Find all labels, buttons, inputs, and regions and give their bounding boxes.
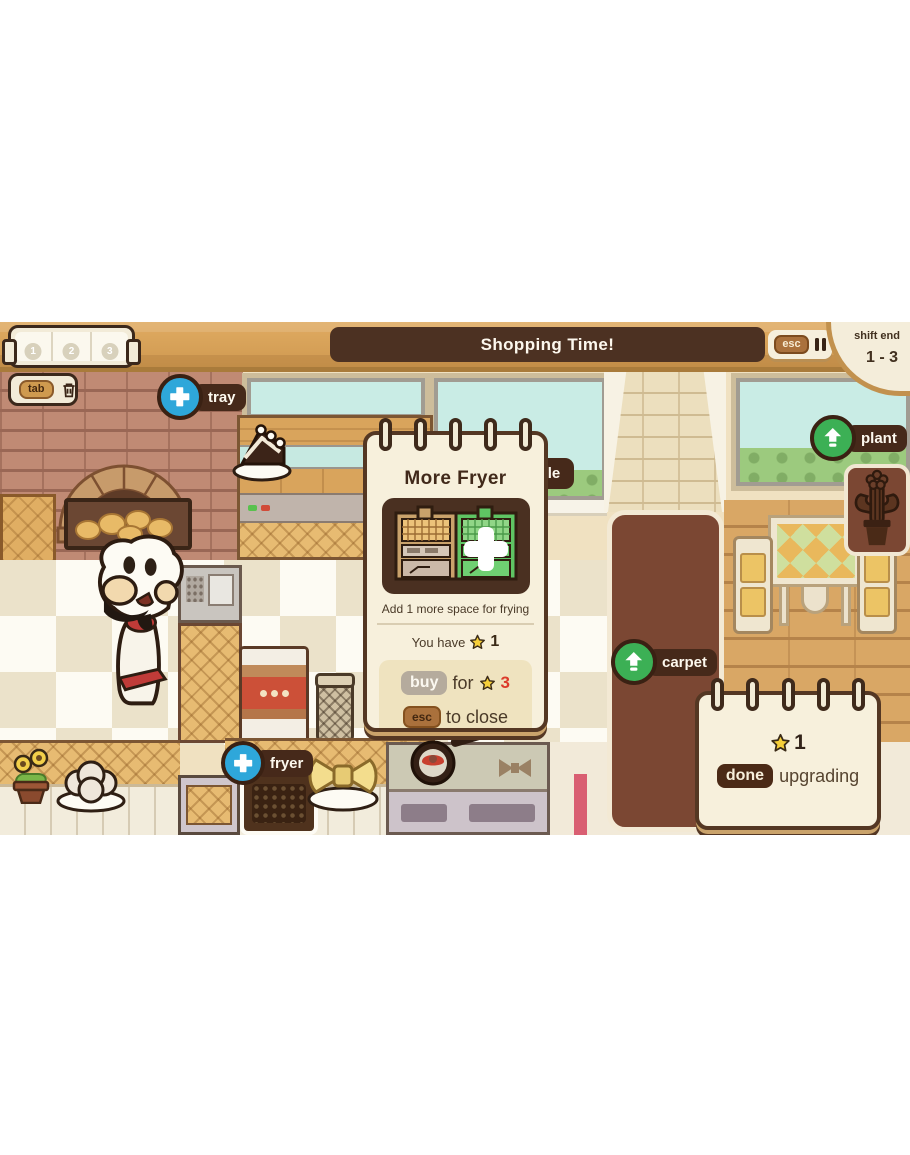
upgrade-note: 1 done upgrading xyxy=(695,678,881,830)
screenshot-page: Shopping Time! esc shift end 1 - 3 1 2 3… xyxy=(0,0,910,1155)
spiral-ring xyxy=(414,418,427,451)
note-paper: 1 done upgrading xyxy=(695,691,881,830)
tab-trash-panel: tab xyxy=(8,373,78,406)
to-close-label: to close xyxy=(446,707,508,728)
popup-image-panel xyxy=(382,498,530,594)
popup-action-box: buy for 3 esc to close xyxy=(379,660,532,732)
spiral-ring xyxy=(379,418,392,451)
fryer-basket xyxy=(186,785,232,825)
tray-slots-panel[interactable]: 1 2 3 xyxy=(8,325,135,368)
tray-slot-2[interactable]: 2 xyxy=(51,332,89,361)
coffee-button xyxy=(271,690,278,697)
upgrade-carpet-button[interactable] xyxy=(611,639,657,685)
cactus-illustration xyxy=(850,469,904,551)
spiral-ring xyxy=(746,678,759,711)
chef-character xyxy=(80,532,198,717)
buns-plate xyxy=(54,750,128,814)
fryer-interior xyxy=(252,784,306,823)
coffee-button xyxy=(260,690,267,697)
fryer-upgrade-illustration xyxy=(390,505,522,587)
owned-star-count: 1 xyxy=(490,633,499,651)
esc-button[interactable]: esc xyxy=(774,335,808,354)
shop-tag-plant[interactable]: plant xyxy=(810,415,907,461)
buy-button[interactable]: buy xyxy=(401,671,447,695)
cost-star-count: 3 xyxy=(501,673,510,693)
chair-cushion xyxy=(864,587,890,617)
red-indicator-light xyxy=(261,505,270,511)
coffee-top xyxy=(242,649,306,665)
up-arrow-icon xyxy=(622,650,646,674)
shift-range: 1 - 3 xyxy=(831,349,898,367)
you-have-row: You have 1 xyxy=(367,633,544,651)
note-done-row: done upgrading xyxy=(699,764,877,788)
tray-slot-3[interactable]: 3 xyxy=(90,332,128,361)
star-icon xyxy=(770,733,791,754)
note-star-count: 1 xyxy=(794,731,806,755)
plus-icon xyxy=(168,385,192,409)
spiral-ring xyxy=(519,418,532,451)
pause-button[interactable] xyxy=(815,338,826,351)
up-arrow-icon xyxy=(821,426,845,450)
done-button[interactable]: done xyxy=(717,764,773,788)
coffee-band-2 xyxy=(242,709,306,719)
note-spiral-rings xyxy=(711,678,865,711)
slot-number: 1 xyxy=(25,343,42,360)
table-leg xyxy=(841,584,851,626)
close-row: esc to close xyxy=(379,706,532,728)
chef-illustration xyxy=(80,532,198,717)
shop-tag-fryer[interactable]: fryer xyxy=(221,741,313,785)
pause-icon xyxy=(822,338,826,351)
cake-slice-plate xyxy=(230,416,294,482)
coffee-red-panel xyxy=(242,677,306,709)
chair-cushion xyxy=(740,587,766,617)
window-left xyxy=(247,378,425,418)
carpet-tag-label: carpet xyxy=(647,649,717,676)
slot-number: 3 xyxy=(101,343,118,360)
coffee-button xyxy=(282,690,289,697)
game-viewport: Shopping Time! esc shift end 1 - 3 1 2 3… xyxy=(0,322,910,835)
spiral-ring xyxy=(852,678,865,711)
shop-tag-tray[interactable]: tray xyxy=(157,374,246,420)
cactus-plant-card xyxy=(844,464,910,556)
chair-left xyxy=(733,536,773,634)
tab-key-button[interactable]: tab xyxy=(19,380,54,399)
tray-slot-1[interactable]: 1 xyxy=(15,332,51,361)
for-label: for xyxy=(452,673,473,694)
popup-esc-button[interactable]: esc xyxy=(403,706,441,728)
pink-wall-stripe xyxy=(574,774,587,835)
farfalle-glyph xyxy=(495,757,535,779)
spiral-ring xyxy=(817,678,830,711)
pause-icon xyxy=(815,338,819,351)
flower-pot-illustration xyxy=(8,744,54,804)
register-screen xyxy=(208,574,234,606)
add-tray-button[interactable] xyxy=(157,374,203,420)
star-icon xyxy=(469,634,486,651)
stove-vent xyxy=(401,804,447,822)
stove-vent xyxy=(469,804,535,822)
stove xyxy=(386,742,550,835)
stove-top xyxy=(389,745,547,792)
popup-spiral-rings xyxy=(379,418,532,451)
esc-pause-box: esc xyxy=(768,330,832,359)
farfalle-plate xyxy=(304,746,382,812)
doorway xyxy=(604,372,726,512)
chair-cushion xyxy=(740,553,766,583)
you-have-label: You have xyxy=(412,635,466,650)
shift-end-label: shift end xyxy=(831,330,900,342)
spiral-ring xyxy=(782,678,795,711)
table-leg xyxy=(779,584,789,626)
trash-icon xyxy=(61,381,77,399)
banner-text: Shopping Time! xyxy=(481,335,615,355)
trash-bin xyxy=(316,675,354,743)
buns-illustration xyxy=(54,750,128,814)
table-leg xyxy=(801,584,829,614)
spiral-ring xyxy=(449,418,462,451)
farfalle-illustration xyxy=(304,746,382,812)
buy-row: buy for 3 xyxy=(379,671,532,695)
flower-pot xyxy=(8,744,54,804)
pan-illustration xyxy=(403,733,489,787)
popup-paper: More Fryer xyxy=(363,431,548,732)
star-icon xyxy=(479,675,496,692)
slot-number: 2 xyxy=(63,343,80,360)
green-indicator-light xyxy=(248,505,257,511)
chair-cushion xyxy=(864,553,890,583)
coffee-machine xyxy=(239,646,309,744)
upgrade-plant-button[interactable] xyxy=(810,415,856,461)
tray-slots: 1 2 3 xyxy=(15,332,128,361)
popup-description: Add 1 more space for frying xyxy=(377,602,534,625)
cake-slice-illustration xyxy=(230,416,294,482)
trash-button[interactable] xyxy=(61,381,77,399)
spiral-ring xyxy=(484,418,497,451)
stone-path xyxy=(608,372,722,512)
add-fryer-button[interactable] xyxy=(221,741,265,785)
more-fryer-popup: More Fryer xyxy=(363,418,548,732)
banner: Shopping Time! xyxy=(330,327,765,362)
note-star-row: 1 xyxy=(699,731,877,755)
popup-title: More Fryer xyxy=(367,468,544,490)
upgrading-label: upgrading xyxy=(779,766,859,787)
spiral-ring xyxy=(711,678,724,711)
plus-icon xyxy=(232,752,254,774)
coffee-band xyxy=(242,665,306,677)
